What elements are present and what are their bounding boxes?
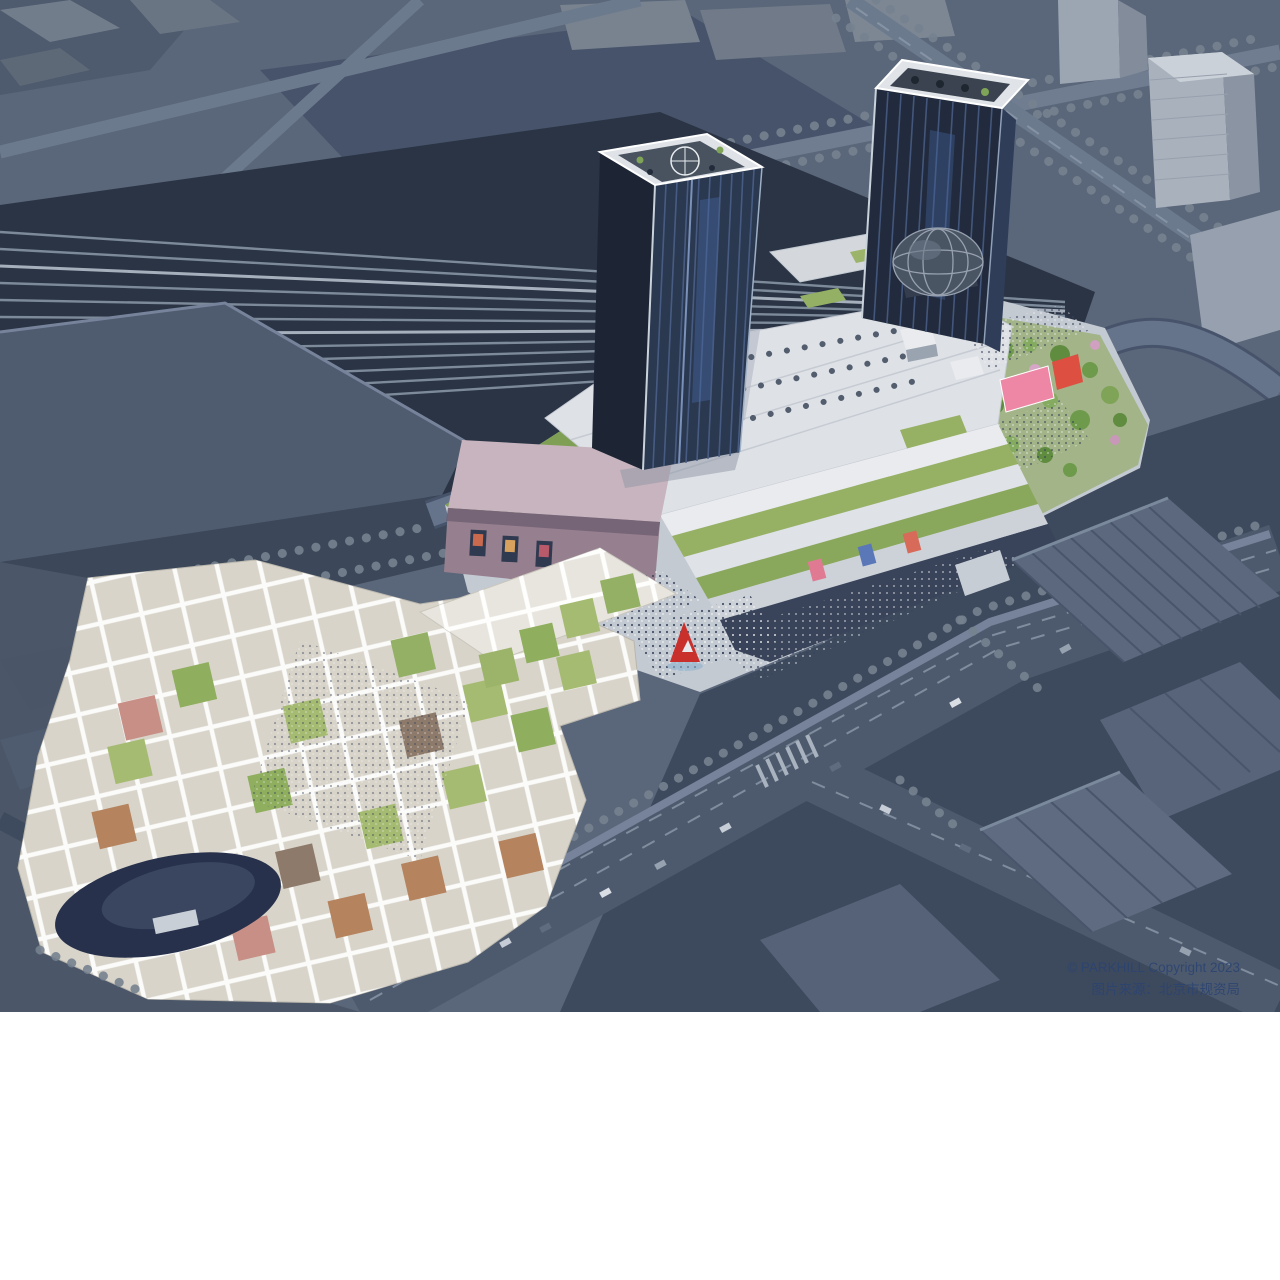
office-tower-west bbox=[592, 134, 762, 488]
copyright-line1: © PARKHILL Copyright 2023 bbox=[1067, 960, 1240, 975]
footer-band: the mix c 北京万象城 华北商业旗舰 + PARKHILL 道宇 bbox=[0, 1012, 1280, 1280]
copyright-line2: 图片来源：北京市规资局 bbox=[1092, 981, 1241, 997]
presentation-slide: © PARKHILL Copyright 2023 图片来源：北京市规资局 th… bbox=[0, 0, 1280, 1280]
aerial-rendering: © PARKHILL Copyright 2023 图片来源：北京市规资局 bbox=[0, 0, 1280, 1012]
